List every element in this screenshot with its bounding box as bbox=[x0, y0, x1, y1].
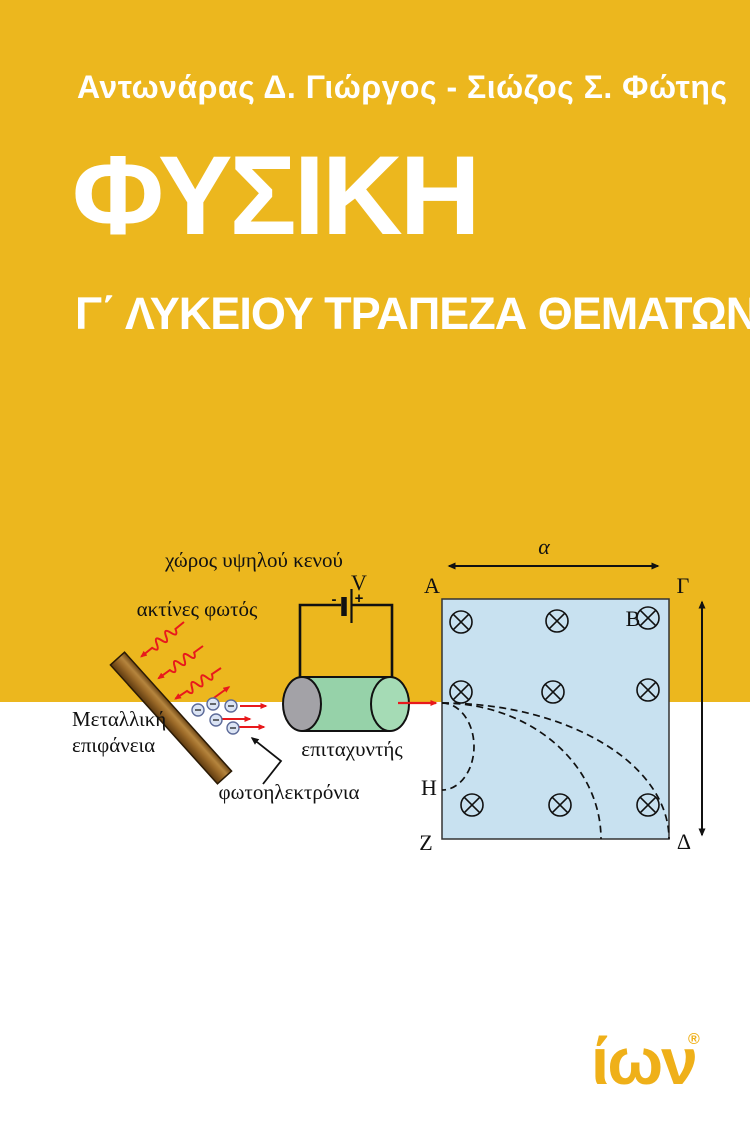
book-title: ΦΥΣΙΚΗ bbox=[72, 140, 478, 252]
light-rays-label: ακτίνες φωτός bbox=[137, 597, 258, 621]
field-square bbox=[442, 599, 669, 839]
corner-label-z: Z bbox=[419, 830, 432, 855]
metal-surface-label-line1: Μεταλλική bbox=[72, 707, 166, 731]
accelerator-label: επιταχυντής bbox=[301, 737, 403, 761]
metal-surface-label-line2: επιφάνεια bbox=[72, 733, 155, 757]
book-subtitle: Γ΄ ΛΥΚΕΙΟΥ ΤΡΑΠΕΖΑ ΘΕΜΑΤΩΝ bbox=[75, 291, 750, 336]
vacuum-label: χώρος υψηλού κενού bbox=[164, 548, 343, 572]
accelerator-entry-cap bbox=[283, 677, 321, 731]
light-ray bbox=[156, 642, 206, 682]
author-line: Αντωνάρας Δ. Γιώργος - Σιώζος Σ. Φώτης bbox=[77, 71, 728, 103]
photoelectric-effect-diagram: α A Γ B H Z Δ χώρος υψηλού κενού ακτίνες… bbox=[0, 530, 750, 870]
light-ray bbox=[138, 619, 186, 661]
battery-minus-sign: - bbox=[332, 591, 337, 608]
corner-label-gamma: Γ bbox=[677, 573, 690, 598]
width-label: α bbox=[538, 534, 550, 559]
photoelectrons-pointer-arrow bbox=[252, 738, 281, 784]
exit-point-h-label: H bbox=[421, 775, 437, 800]
magnetic-field-region: α A Γ B H Z Δ bbox=[419, 534, 702, 855]
electrons bbox=[192, 698, 239, 734]
registered-trademark-icon: ® bbox=[688, 1032, 700, 1048]
photoelectrons-label: φωτοηλεκτρόνια bbox=[218, 780, 359, 804]
book-cover: Αντωνάρας Δ. Γιώργος - Σιώζος Σ. Φώτης Φ… bbox=[0, 0, 750, 1134]
voltage-label: V bbox=[351, 570, 367, 595]
publisher-logo: ίων bbox=[591, 1028, 696, 1094]
corner-label-delta: Δ bbox=[677, 829, 691, 854]
battery-circuit: - + V bbox=[300, 570, 392, 678]
field-point-b-label: B bbox=[626, 606, 641, 631]
corner-label-a: A bbox=[424, 573, 440, 598]
accelerator: επιταχυντής bbox=[283, 677, 436, 761]
